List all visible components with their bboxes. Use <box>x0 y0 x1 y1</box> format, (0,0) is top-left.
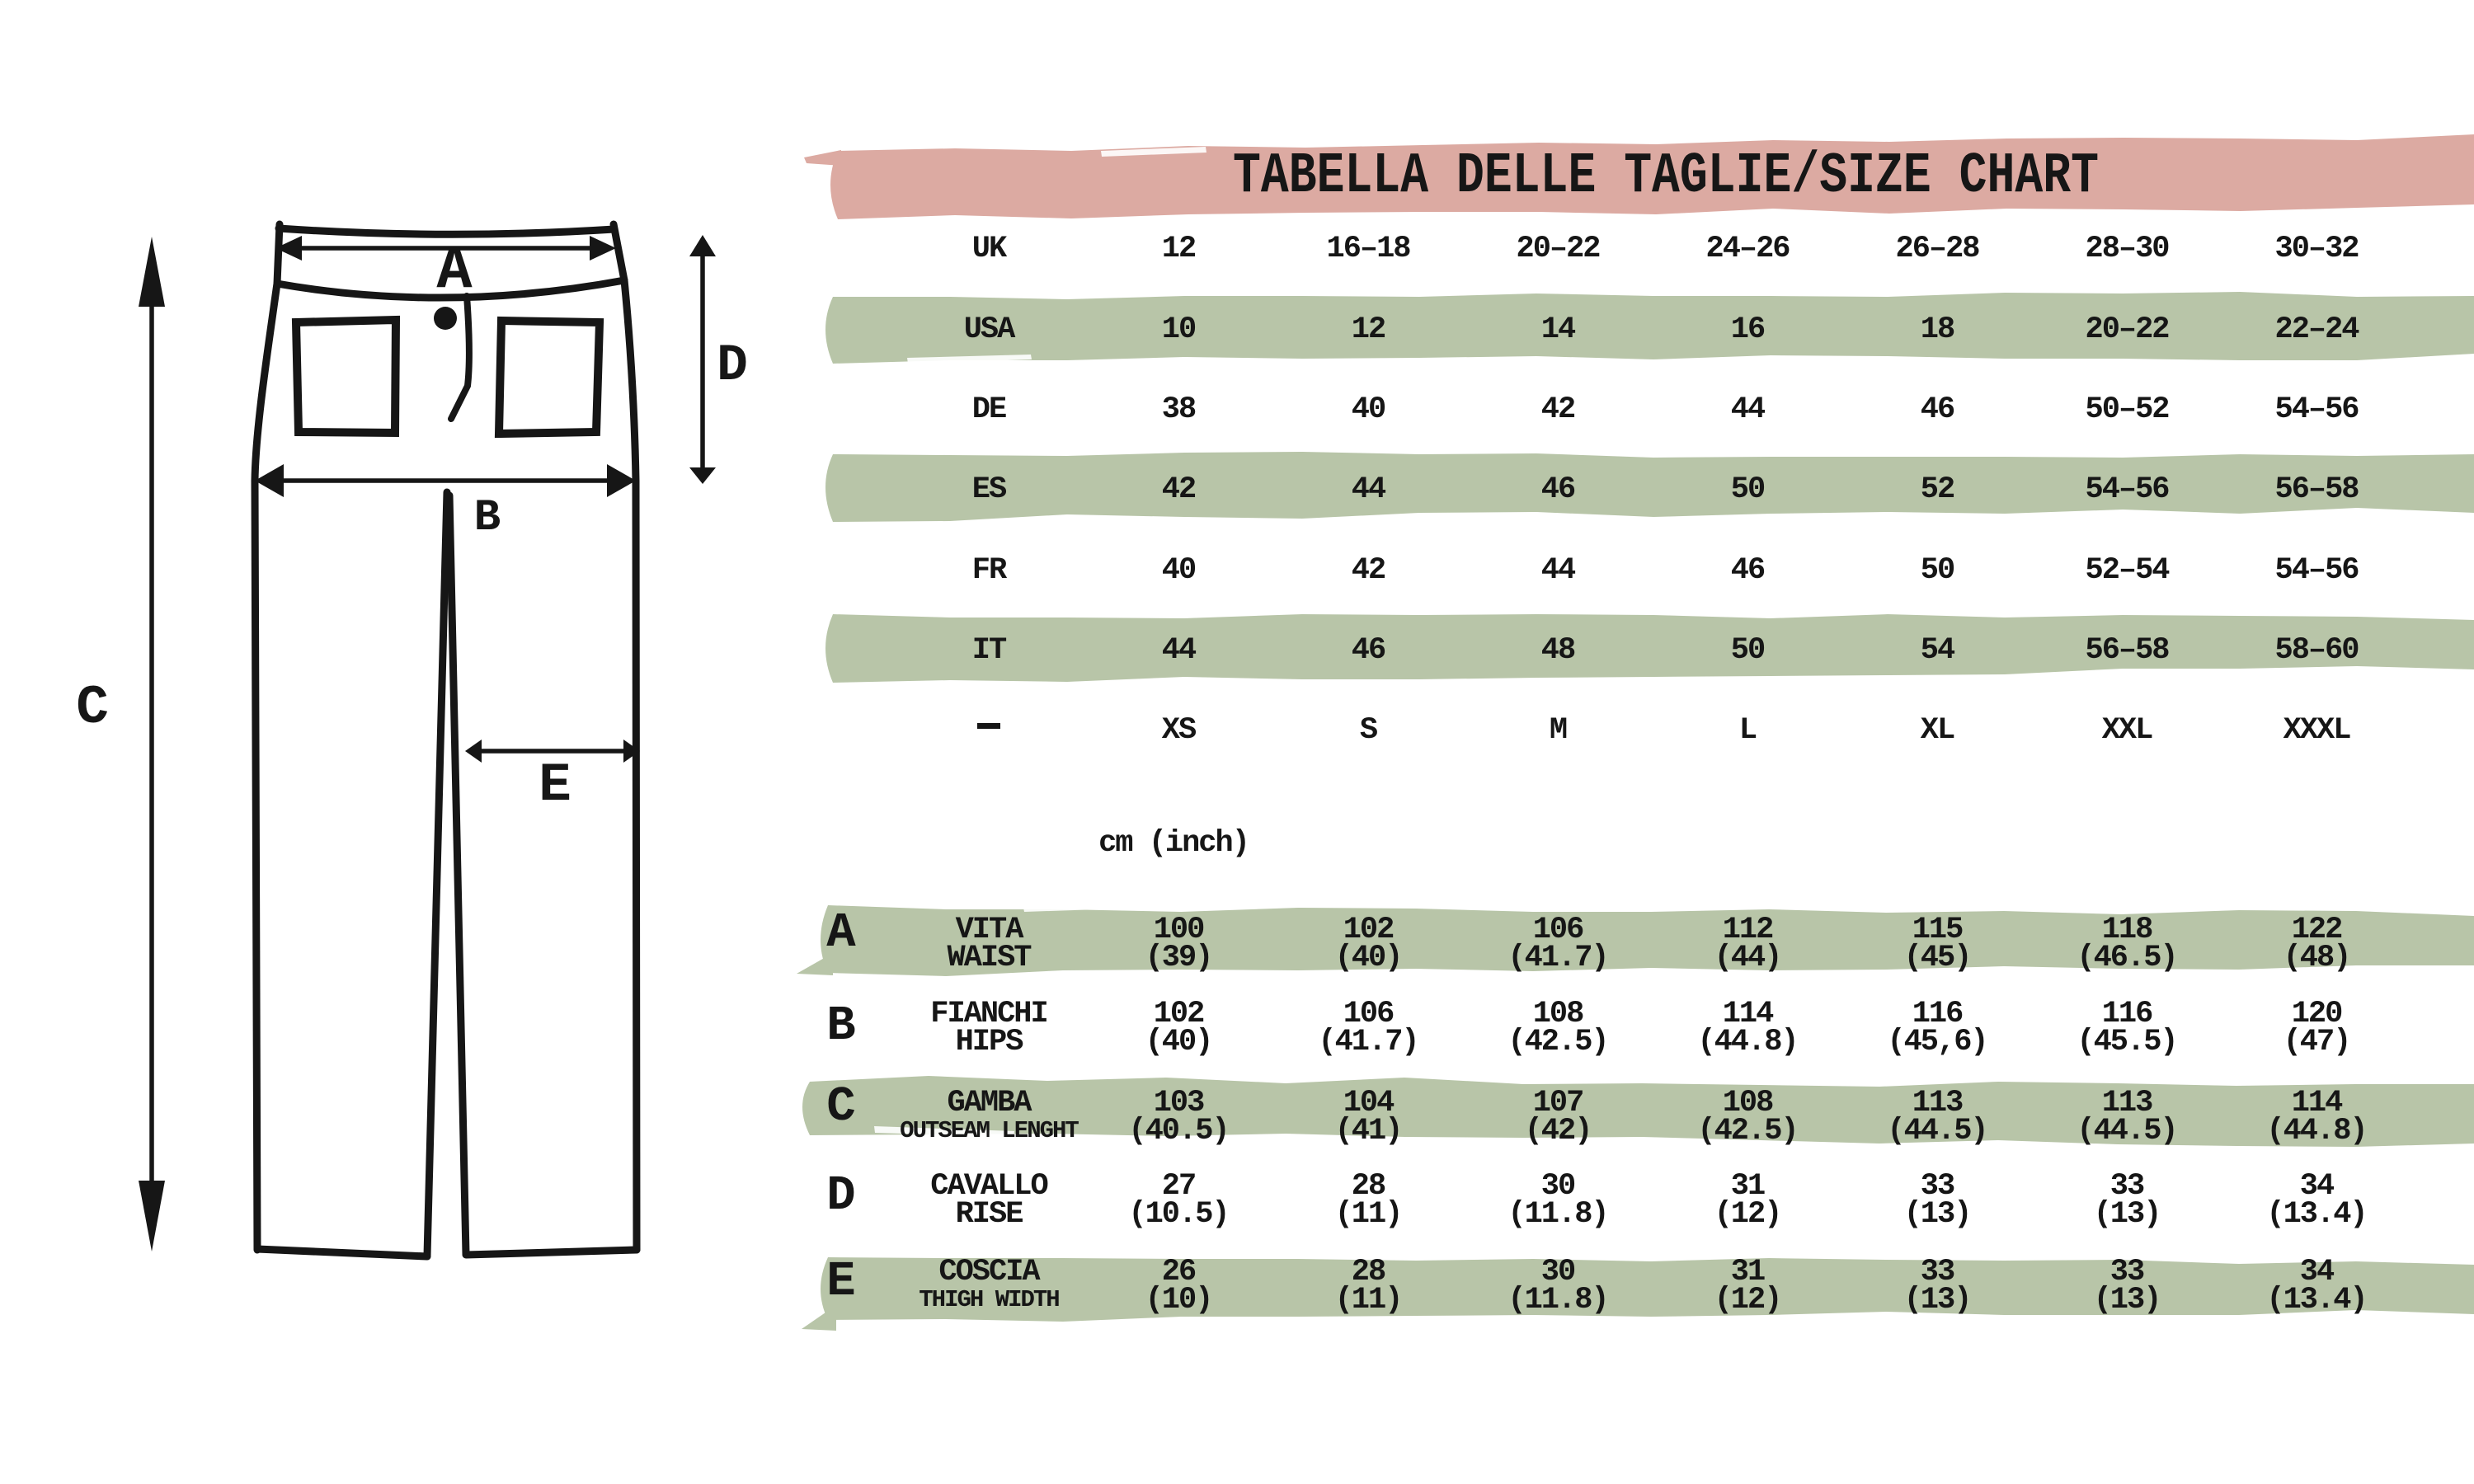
svg-text:42: 42 <box>1162 472 1196 507</box>
svg-text:14: 14 <box>1541 312 1576 347</box>
svg-text:52: 52 <box>1921 472 1954 507</box>
svg-text:ES: ES <box>972 472 1007 507</box>
svg-text:(41.7): (41.7) <box>1318 1025 1418 1059</box>
svg-text:(45): (45) <box>1904 941 1971 975</box>
svg-text:20–22: 20–22 <box>1516 232 1600 266</box>
svg-text:S: S <box>1360 713 1378 748</box>
svg-text:E: E <box>826 1254 855 1309</box>
svg-text:(41): (41) <box>1335 1114 1402 1148</box>
svg-text:XXL: XXL <box>2102 713 2152 748</box>
svg-text:D: D <box>826 1168 855 1223</box>
svg-text:RISE: RISE <box>956 1197 1023 1232</box>
svg-text:58–60: 58–60 <box>2274 633 2359 668</box>
svg-text:WAIST: WAIST <box>947 941 1032 975</box>
svg-text:48: 48 <box>1541 633 1575 668</box>
svg-text:44: 44 <box>1162 633 1197 668</box>
svg-text:COSCIA: COSCIA <box>938 1255 1041 1289</box>
svg-text:22–24: 22–24 <box>2274 312 2359 347</box>
svg-text:XL: XL <box>1921 713 1954 748</box>
svg-text:(40): (40) <box>1335 941 1402 975</box>
svg-text:cm (inch): cm (inch) <box>1098 826 1249 861</box>
svg-text:(13): (13) <box>2094 1197 2161 1232</box>
svg-text:10: 10 <box>1162 312 1196 347</box>
svg-text:46: 46 <box>1541 472 1575 507</box>
svg-text:D: D <box>717 336 748 395</box>
svg-text:46: 46 <box>1921 392 1954 427</box>
svg-text:UK: UK <box>972 232 1008 266</box>
svg-text:52–54: 52–54 <box>2085 553 2170 588</box>
svg-text:18: 18 <box>1921 312 1954 347</box>
svg-text:38: 38 <box>1162 392 1196 427</box>
svg-text:(45,6): (45,6) <box>1887 1025 1987 1059</box>
svg-text:(46.5): (46.5) <box>2077 941 2176 975</box>
svg-text:M: M <box>1550 713 1567 748</box>
svg-text:54: 54 <box>1921 633 1955 668</box>
svg-text:L: L <box>1739 713 1757 748</box>
svg-text:(44.5): (44.5) <box>2077 1114 2176 1148</box>
svg-text:(44.8): (44.8) <box>2266 1114 2366 1148</box>
svg-text:FR: FR <box>972 553 1008 588</box>
svg-text:(10): (10) <box>1145 1283 1212 1317</box>
svg-text:(40): (40) <box>1145 1025 1212 1059</box>
svg-text:A: A <box>826 905 856 960</box>
svg-text:XS: XS <box>1162 713 1197 748</box>
svg-text:44: 44 <box>1352 472 1386 507</box>
svg-text:44: 44 <box>1541 553 1576 588</box>
svg-text:44: 44 <box>1731 392 1766 427</box>
svg-text:12: 12 <box>1352 312 1385 347</box>
svg-text:46: 46 <box>1731 553 1765 588</box>
svg-text:(45.5): (45.5) <box>2077 1025 2176 1059</box>
svg-text:B: B <box>826 998 855 1054</box>
svg-text:USA: USA <box>964 312 1016 347</box>
svg-text:HIPS: HIPS <box>956 1025 1024 1059</box>
svg-text:(42): (42) <box>1525 1114 1592 1148</box>
svg-text:(11): (11) <box>1335 1283 1402 1317</box>
svg-text:(11.8): (11.8) <box>1507 1197 1607 1232</box>
svg-text:B: B <box>474 493 501 543</box>
svg-text:(10.5): (10.5) <box>1128 1197 1228 1232</box>
svg-text:56–58: 56–58 <box>2274 472 2359 507</box>
svg-text:40: 40 <box>1162 553 1196 588</box>
svg-text:(12): (12) <box>1714 1197 1781 1232</box>
svg-text:54–56: 54–56 <box>2274 553 2359 588</box>
svg-text:DE: DE <box>972 392 1006 427</box>
svg-text:TABELLA DELLE TAGLIE/SIZE CHAR: TABELLA DELLE TAGLIE/SIZE CHART <box>1233 144 2099 209</box>
svg-text:GAMBA: GAMBA <box>947 1086 1032 1120</box>
svg-text:42: 42 <box>1352 553 1385 588</box>
svg-text:(42.5): (42.5) <box>1697 1114 1797 1148</box>
svg-text:(47): (47) <box>2284 1025 2350 1059</box>
svg-text:(12): (12) <box>1714 1283 1781 1317</box>
svg-text:C: C <box>826 1079 855 1134</box>
svg-text:(39): (39) <box>1145 941 1212 975</box>
svg-text:16: 16 <box>1731 312 1765 347</box>
svg-text:E: E <box>539 754 571 816</box>
svg-text:(13.4): (13.4) <box>2266 1283 2366 1317</box>
svg-text:(48): (48) <box>2284 941 2350 975</box>
svg-text:(13.4): (13.4) <box>2266 1197 2366 1232</box>
svg-text:(11): (11) <box>1335 1197 1402 1232</box>
svg-text:20–22: 20–22 <box>2085 312 2169 347</box>
svg-text:26–28: 26–28 <box>1895 232 1979 266</box>
svg-text:46: 46 <box>1352 633 1385 668</box>
svg-text:THIGH WIDTH: THIGH WIDTH <box>919 1286 1059 1313</box>
svg-text:(40.5): (40.5) <box>1128 1114 1228 1148</box>
svg-text:(44.8): (44.8) <box>1697 1025 1797 1059</box>
svg-text:50: 50 <box>1731 633 1765 668</box>
svg-text:50: 50 <box>1921 553 1954 588</box>
svg-text:(44.5): (44.5) <box>1887 1114 1987 1148</box>
svg-text:(13): (13) <box>1904 1283 1971 1317</box>
svg-text:(41.7): (41.7) <box>1507 941 1607 975</box>
svg-text:OUTSEAM LENGHT: OUTSEAM LENGHT <box>900 1117 1079 1144</box>
svg-text:(13): (13) <box>2094 1283 2161 1317</box>
svg-text:(42.5): (42.5) <box>1507 1025 1607 1059</box>
svg-text:A: A <box>436 237 473 305</box>
svg-text:28–30: 28–30 <box>2085 232 2169 266</box>
svg-text:XXXL: XXXL <box>2284 713 2351 748</box>
svg-text:(44): (44) <box>1714 941 1781 975</box>
svg-text:30–32: 30–32 <box>2274 232 2359 266</box>
svg-text:42: 42 <box>1541 392 1575 427</box>
svg-text:12: 12 <box>1162 232 1196 266</box>
svg-text:50–52: 50–52 <box>2085 392 2169 427</box>
svg-text:IT: IT <box>972 633 1007 668</box>
svg-text:24–26: 24–26 <box>1705 232 1790 266</box>
svg-text:56–58: 56–58 <box>2085 633 2169 668</box>
svg-text:(11.8): (11.8) <box>1507 1283 1607 1317</box>
svg-text:16–18: 16–18 <box>1326 232 1410 266</box>
svg-text:C: C <box>76 677 109 739</box>
svg-text:54–56: 54–56 <box>2085 472 2169 507</box>
svg-text:40: 40 <box>1352 392 1385 427</box>
svg-text:54–56: 54–56 <box>2274 392 2359 427</box>
svg-text:50: 50 <box>1731 472 1765 507</box>
svg-text:(13): (13) <box>1904 1197 1971 1232</box>
